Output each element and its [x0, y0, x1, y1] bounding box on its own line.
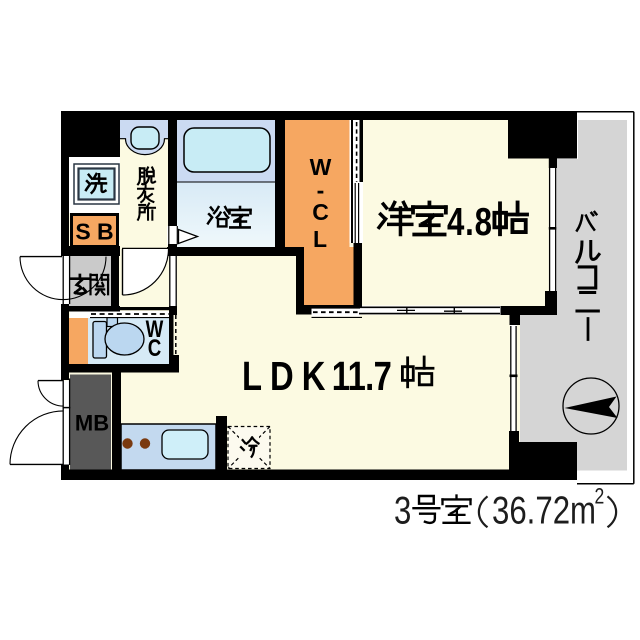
svg-text:C: C [312, 199, 329, 225]
svg-text:MB: MB [75, 411, 109, 436]
svg-text:4.8: 4.8 [447, 201, 493, 244]
svg-text:S B: S B [75, 219, 113, 245]
svg-text:LDK11.7: LDK11.7 [242, 352, 391, 398]
svg-text:L: L [313, 226, 327, 252]
svg-text:C: C [148, 335, 162, 362]
svg-text:36.72m: 36.72m [492, 489, 596, 532]
svg-text:2: 2 [595, 485, 605, 509]
svg-text:3: 3 [394, 489, 411, 532]
